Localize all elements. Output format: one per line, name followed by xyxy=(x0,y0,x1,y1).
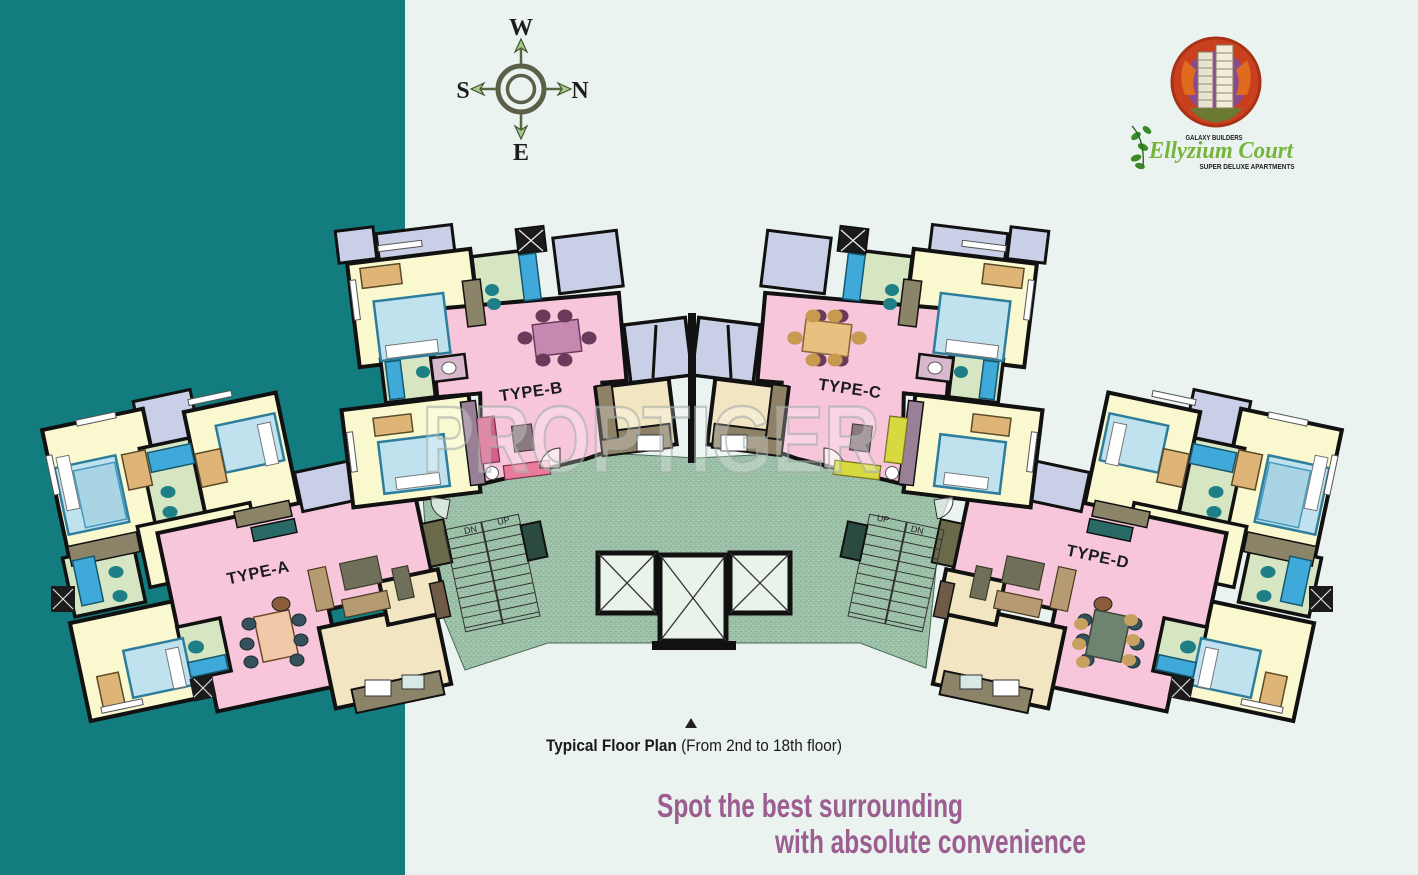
svg-text:Ellyzium Court: Ellyzium Court xyxy=(1148,138,1294,164)
svg-text:PROPTIGER: PROPTIGER xyxy=(422,387,880,493)
svg-text:with absolute convenience: with absolute convenience xyxy=(774,823,1086,860)
svg-text:E: E xyxy=(513,140,529,166)
svg-text:W: W xyxy=(509,15,533,41)
svg-text:N: N xyxy=(571,78,589,104)
svg-text:Spot the best surrounding: Spot the best surrounding xyxy=(657,787,963,824)
svg-text:S: S xyxy=(456,78,469,104)
svg-text:SUPER DELUXE APARTMENTS: SUPER DELUXE APARTMENTS xyxy=(1200,162,1295,171)
svg-text:Typical Floor Plan (From 2nd t: Typical Floor Plan (From 2nd to 18th flo… xyxy=(546,736,842,755)
